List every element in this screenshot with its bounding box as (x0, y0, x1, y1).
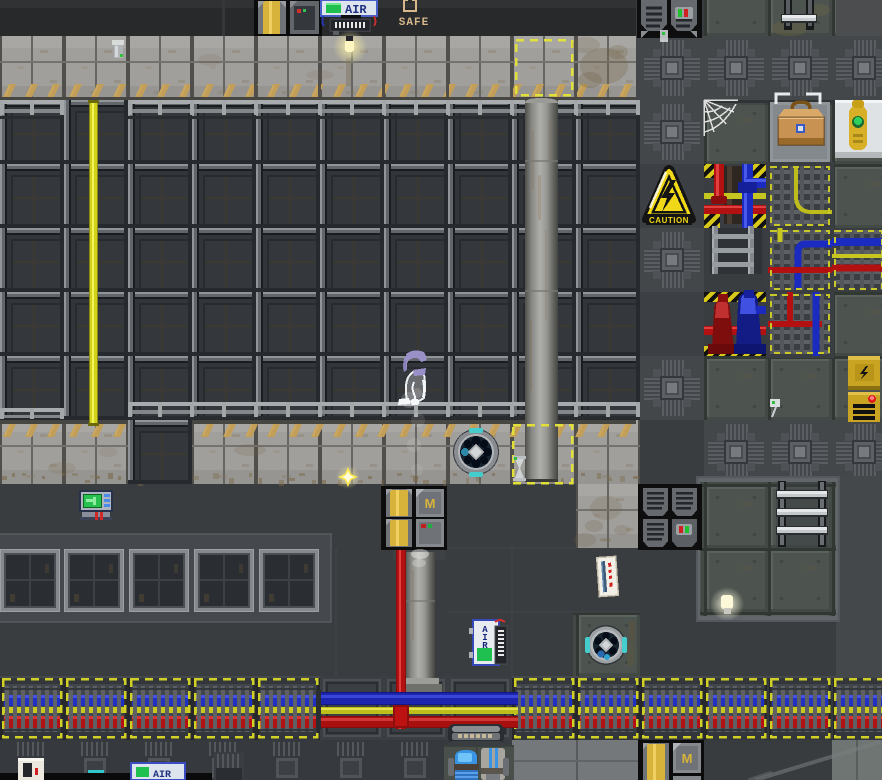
svg-text:M: M (425, 496, 436, 511)
svg-text:AIR: AIR (345, 3, 367, 17)
svg-text:M: M (682, 751, 693, 766)
svg-text:SAFE: SAFE (399, 17, 429, 29)
svg-text:AIR: AIR (153, 770, 171, 780)
svg-text:CAUTION: CAUTION (649, 216, 689, 225)
